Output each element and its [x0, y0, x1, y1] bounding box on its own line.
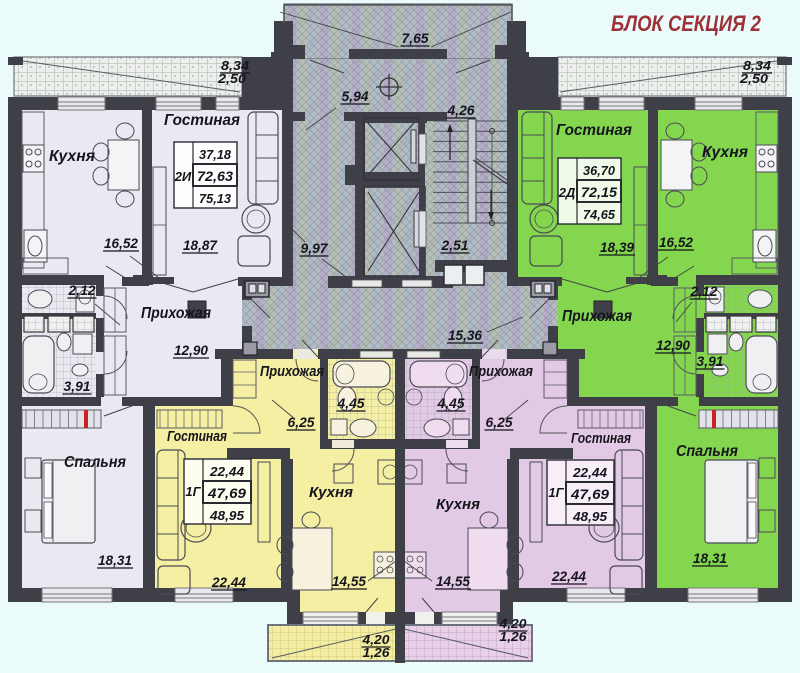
- svg-text:14,55: 14,55: [332, 574, 366, 589]
- svg-text:Спальня: Спальня: [64, 454, 127, 471]
- svg-text:Гостиная: Гостиная: [167, 428, 227, 445]
- svg-text:47,69: 47,69: [207, 485, 246, 501]
- svg-text:Гостиная: Гостиная: [571, 430, 631, 447]
- svg-text:72,15: 72,15: [581, 184, 617, 200]
- svg-text:12,90: 12,90: [174, 343, 208, 358]
- svg-text:8,34: 8,34: [221, 59, 249, 73]
- svg-text:БЛОК СЕКЦИЯ 2: БЛОК СЕКЦИЯ 2: [611, 11, 762, 36]
- svg-text:5,94: 5,94: [342, 89, 369, 104]
- svg-text:Кухня: Кухня: [49, 148, 96, 165]
- svg-text:15,36: 15,36: [448, 328, 482, 343]
- svg-text:22,44: 22,44: [572, 466, 607, 480]
- svg-text:Гостиная: Гостиная: [556, 122, 633, 139]
- svg-text:18,31: 18,31: [693, 551, 727, 566]
- svg-text:12,90: 12,90: [656, 338, 690, 353]
- svg-text:7,65: 7,65: [402, 31, 429, 46]
- svg-text:22,44: 22,44: [551, 569, 586, 584]
- svg-text:Прихожая: Прихожая: [469, 363, 533, 380]
- svg-text:74,65: 74,65: [583, 208, 616, 222]
- svg-text:9,97: 9,97: [301, 241, 330, 256]
- svg-text:2И: 2И: [174, 169, 192, 184]
- svg-text:Прихожая: Прихожая: [260, 363, 324, 380]
- svg-text:16,52: 16,52: [659, 235, 693, 250]
- svg-text:Прихожая: Прихожая: [562, 308, 633, 325]
- svg-text:Кухня: Кухня: [436, 496, 480, 513]
- svg-text:Кухня: Кухня: [702, 144, 749, 161]
- svg-text:48,95: 48,95: [209, 509, 245, 523]
- svg-text:4,20: 4,20: [498, 617, 526, 631]
- svg-text:4,45: 4,45: [336, 396, 365, 411]
- svg-text:72,63: 72,63: [197, 168, 233, 184]
- svg-text:37,18: 37,18: [199, 148, 231, 162]
- svg-text:18,87: 18,87: [183, 238, 218, 253]
- svg-text:16,52: 16,52: [104, 236, 138, 251]
- svg-text:2,51: 2,51: [440, 238, 468, 253]
- svg-text:1Г: 1Г: [548, 485, 564, 500]
- svg-text:Гостиная: Гостиная: [164, 112, 241, 129]
- svg-text:2,12: 2,12: [67, 283, 96, 298]
- svg-text:4,26: 4,26: [446, 103, 475, 118]
- svg-text:18,31: 18,31: [98, 553, 132, 568]
- svg-text:3,91: 3,91: [64, 379, 91, 394]
- svg-text:75,13: 75,13: [199, 192, 231, 206]
- svg-text:1,26: 1,26: [363, 646, 391, 660]
- svg-text:8,34: 8,34: [743, 59, 771, 73]
- svg-text:Спальня: Спальня: [676, 443, 739, 460]
- svg-text:2,50: 2,50: [739, 72, 768, 86]
- svg-text:Прихожая: Прихожая: [141, 305, 212, 322]
- svg-text:2,50: 2,50: [217, 72, 246, 86]
- svg-text:3,91: 3,91: [697, 354, 724, 369]
- svg-text:14,55: 14,55: [436, 574, 470, 589]
- svg-text:22,44: 22,44: [209, 465, 244, 479]
- svg-text:1,26: 1,26: [500, 630, 528, 644]
- svg-text:4,20: 4,20: [361, 633, 389, 647]
- svg-text:6,25: 6,25: [288, 415, 315, 430]
- svg-text:18,39: 18,39: [600, 240, 634, 255]
- svg-text:48,95: 48,95: [572, 510, 608, 524]
- svg-text:Кухня: Кухня: [309, 484, 353, 501]
- svg-text:1Г: 1Г: [185, 484, 201, 499]
- svg-text:4,45: 4,45: [436, 396, 465, 411]
- svg-text:47,69: 47,69: [570, 486, 609, 502]
- svg-text:2Д: 2Д: [558, 185, 576, 200]
- svg-text:6,25: 6,25: [486, 415, 513, 430]
- svg-text:36,70: 36,70: [583, 164, 615, 178]
- svg-text:2,12: 2,12: [689, 284, 718, 299]
- svg-text:22,44: 22,44: [211, 575, 246, 590]
